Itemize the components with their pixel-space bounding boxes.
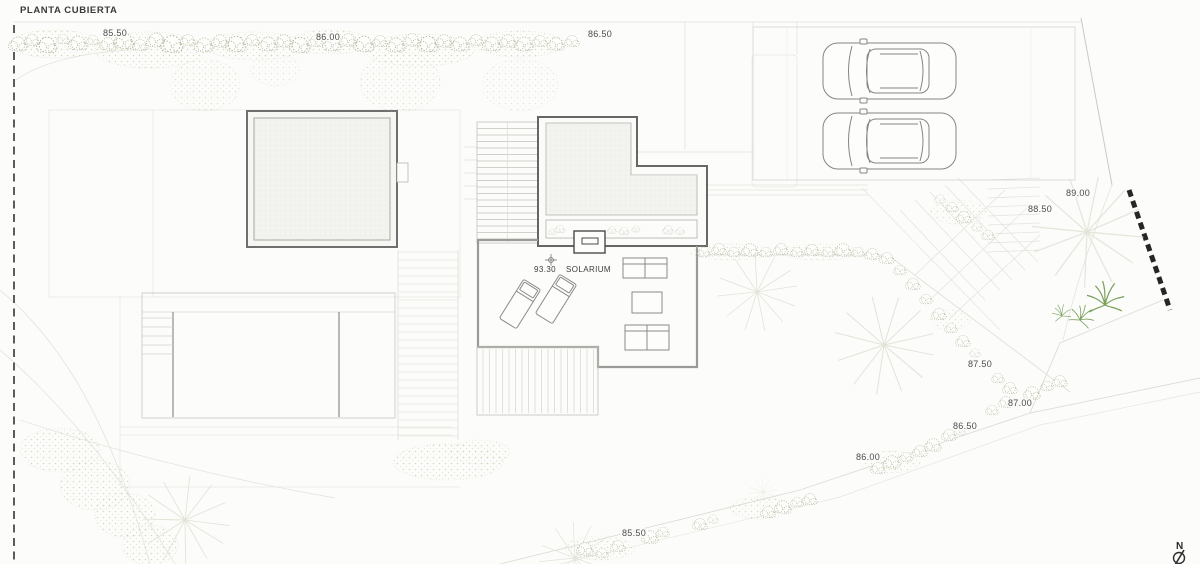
elevation-label: 85.50 <box>622 528 646 538</box>
staircase <box>464 122 548 243</box>
retaining-wall <box>1129 190 1170 310</box>
car <box>823 39 956 103</box>
sun-loungers <box>499 274 576 329</box>
roof-ledge <box>397 163 408 182</box>
elevation-label: 86.00 <box>316 32 340 42</box>
chimney <box>574 231 605 253</box>
sofa-set <box>623 258 669 350</box>
elevation-label: 86.00 <box>856 452 880 462</box>
elevation-label: 89.00 <box>1066 188 1090 198</box>
roof-block-west <box>247 111 408 247</box>
solarium-name-label: SOLARIUM <box>566 265 611 274</box>
elevation-label: 87.50 <box>968 359 992 369</box>
agave-plants <box>1050 281 1124 330</box>
solarium-terrace <box>478 240 697 367</box>
north-arrow: N <box>1174 541 1185 564</box>
north-label: N <box>1176 541 1183 552</box>
elevation-label: 86.50 <box>588 29 612 39</box>
solarium-level-label: 93.30 <box>534 265 556 274</box>
plan-title: PLANTA CUBIERTA <box>20 5 117 16</box>
deck <box>477 347 598 415</box>
pool <box>142 293 395 418</box>
elevation-label: 88.50 <box>1028 204 1052 214</box>
floor-plan-canvas: PLANTA CUBIERTA 85.50 86.00 86.50 89.00 … <box>0 0 1200 564</box>
plot-boundary-east <box>1081 18 1170 310</box>
elevation-label: 87.00 <box>1008 398 1032 408</box>
shrub-row-south <box>576 375 1067 558</box>
car <box>823 109 956 173</box>
elevation-label: 85.50 <box>103 28 127 38</box>
elevation-label: 86.50 <box>953 421 977 431</box>
pool-steps <box>142 318 173 354</box>
parking-area <box>753 27 1075 180</box>
terrace-steps-band <box>398 250 458 440</box>
